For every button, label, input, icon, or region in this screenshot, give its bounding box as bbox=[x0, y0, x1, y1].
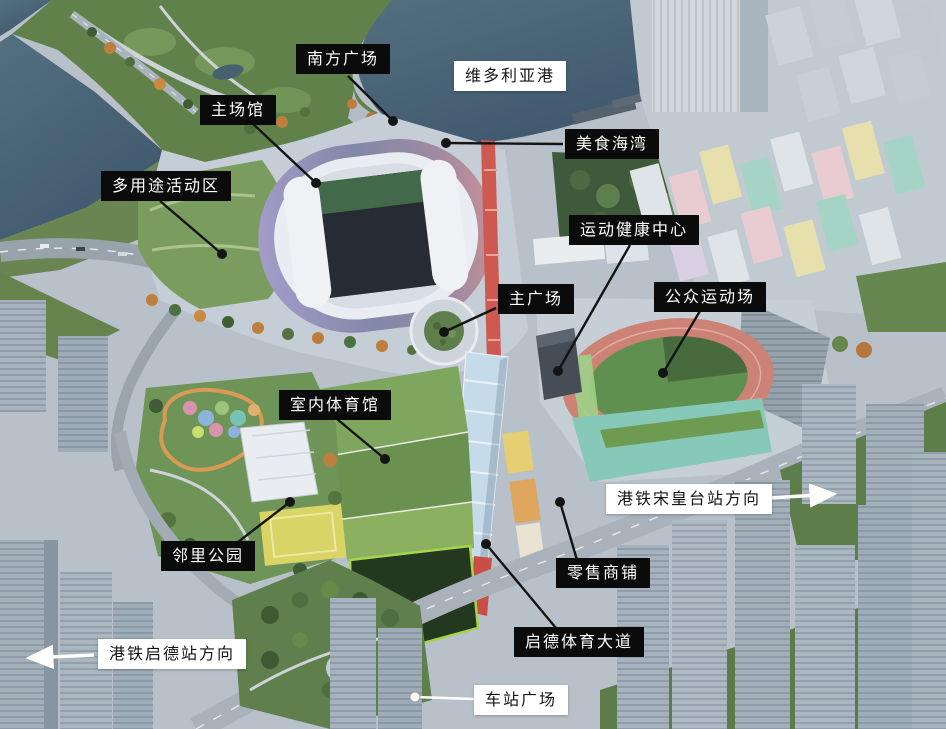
label-retail-shops: 零售商铺 bbox=[556, 558, 650, 588]
label-multi-purpose-activity-zone: 多用途活动区 bbox=[101, 171, 231, 201]
label-south-plaza: 南方广场 bbox=[296, 44, 390, 74]
label-victoria-harbour: 维多利亚港 bbox=[454, 61, 566, 91]
leader-dot-main-plaza bbox=[439, 327, 449, 337]
leader-dot-main-stadium bbox=[311, 178, 321, 188]
leader-line-public-sports-ground bbox=[663, 311, 700, 373]
label-public-sports-ground: 公众运动场 bbox=[654, 282, 766, 312]
label-mtr-sung-wong-toi-direction: 港铁宋皇台站方向 bbox=[606, 484, 772, 514]
leader-dot-indoor-sports-hall bbox=[380, 454, 390, 464]
leader-dot-station-square bbox=[410, 692, 420, 702]
leader-dot-neighbourhood-park bbox=[285, 497, 295, 507]
label-main-plaza: 主广场 bbox=[498, 284, 574, 314]
leader-line-food-bay bbox=[446, 143, 563, 144]
leader-line-indoor-sports-hall bbox=[337, 419, 385, 459]
leader-dot-food-bay bbox=[441, 138, 451, 148]
leader-dot-public-sports-ground bbox=[658, 368, 668, 378]
leader-dot-sports-health-centre bbox=[553, 366, 563, 376]
annotation-overlay bbox=[0, 0, 946, 729]
label-mtr-kai-tak-direction: 港铁启德站方向 bbox=[98, 639, 246, 669]
label-main-stadium: 主场馆 bbox=[200, 95, 276, 125]
label-indoor-sports-hall: 室内体育馆 bbox=[279, 390, 391, 420]
leader-line-retail-shops bbox=[560, 502, 577, 560]
label-station-square: 车站广场 bbox=[474, 685, 568, 715]
direction-arrow-mtr-kai-tak-direction bbox=[29, 655, 94, 658]
label-neighbourhood-park: 邻里公园 bbox=[161, 541, 255, 571]
leader-line-kai-tak-sports-avenue bbox=[486, 544, 556, 628]
aerial-masterplan-view: 南方广场 维多利亚港 主场馆 美食海湾 多用途活动区 运动健康中心 主广场 公众… bbox=[0, 0, 946, 729]
label-kai-tak-sports-avenue: 启德体育大道 bbox=[514, 627, 644, 657]
leader-dot-retail-shops bbox=[555, 497, 565, 507]
leader-line-neighbourhood-park bbox=[238, 502, 290, 542]
label-sports-health-centre: 运动健康中心 bbox=[569, 215, 699, 245]
leader-line-south-plaza bbox=[348, 76, 393, 121]
label-food-bay: 美食海湾 bbox=[565, 129, 659, 159]
leader-line-main-stadium bbox=[252, 123, 316, 183]
leader-line-multi-purpose-activity-zone bbox=[160, 201, 222, 254]
leader-dot-multi-purpose-activity-zone bbox=[217, 249, 227, 259]
leader-dot-south-plaza bbox=[388, 116, 398, 126]
direction-arrow-mtr-sung-wong-toi-direction bbox=[769, 494, 834, 498]
leader-line-station-square bbox=[415, 697, 474, 699]
leader-dot-kai-tak-sports-avenue bbox=[481, 539, 491, 549]
leader-line-main-plaza bbox=[444, 308, 496, 332]
